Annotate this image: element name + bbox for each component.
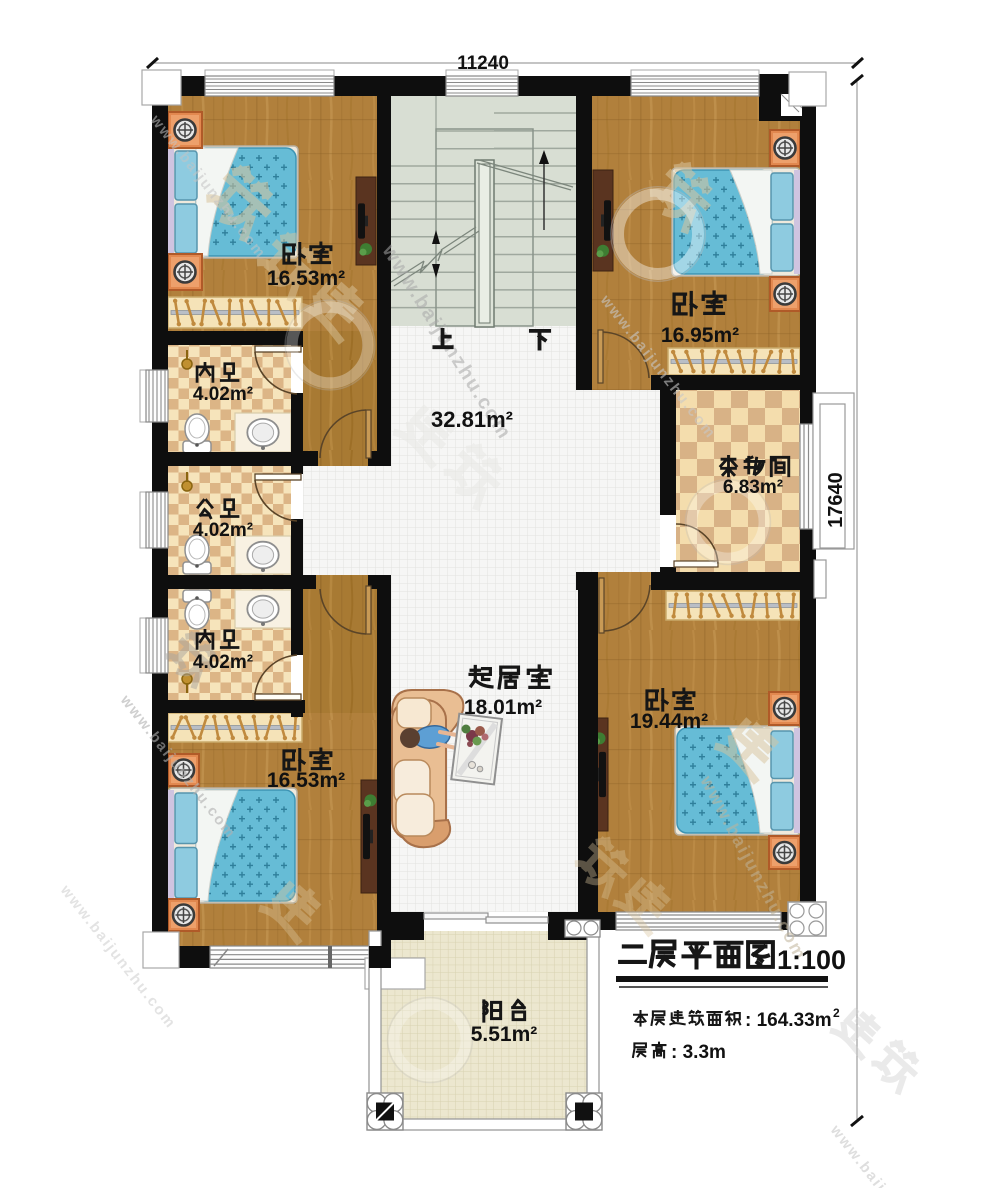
svg-text:16.95m²: 16.95m² [661,324,739,347]
svg-text:1:100: 1:100 [777,945,846,975]
svg-text:17640: 17640 [825,472,847,528]
svg-text:2: 2 [833,1006,840,1020]
svg-text:: 164.33m: : 164.33m [745,1010,832,1031]
svg-text:: 3.3m: : 3.3m [671,1042,726,1063]
svg-text:32.81m²: 32.81m² [431,407,513,432]
svg-text:16.53m²: 16.53m² [267,267,345,290]
svg-text:4.02m²: 4.02m² [193,384,253,405]
svg-text:18.01m²: 18.01m² [464,696,542,719]
svg-text:6.83m²: 6.83m² [723,477,783,498]
svg-text:4.02m²: 4.02m² [193,652,253,673]
svg-text:11240: 11240 [457,53,509,74]
svg-text:5.51m²: 5.51m² [471,1023,538,1046]
svg-text:19.44m²: 19.44m² [630,710,708,733]
svg-text:16.53m²: 16.53m² [267,769,345,792]
svg-text:4.02m²: 4.02m² [193,520,253,541]
